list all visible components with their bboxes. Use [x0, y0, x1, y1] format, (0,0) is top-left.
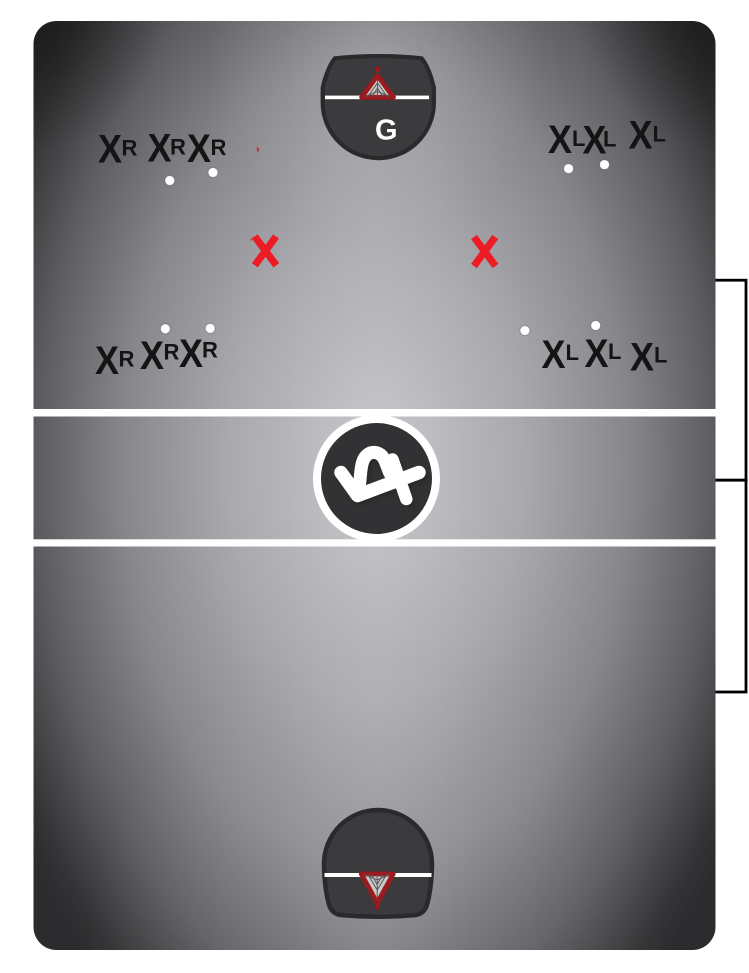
svg-text:L: L — [566, 340, 579, 365]
svg-text:G: G — [375, 114, 398, 146]
svg-text:X: X — [542, 333, 566, 377]
svg-text:R: R — [122, 136, 138, 161]
svg-text:X: X — [95, 339, 119, 383]
svg-text:L: L — [603, 127, 616, 152]
svg-text:X: X — [548, 118, 572, 162]
svg-text:X: X — [148, 127, 172, 171]
svg-text:X: X — [187, 127, 211, 171]
svg-text:X: X — [179, 332, 203, 376]
svg-text:X: X — [630, 336, 654, 380]
svg-text:R: R — [170, 135, 186, 160]
svg-text:X: X — [585, 332, 609, 376]
svg-text:R: R — [119, 347, 135, 372]
svg-text:L: L — [608, 339, 621, 364]
svg-text:R: R — [202, 338, 218, 363]
svg-text:L: L — [653, 122, 666, 147]
svg-text:X: X — [629, 114, 653, 158]
svg-text:X: X — [140, 334, 164, 378]
svg-text:L: L — [654, 343, 667, 368]
svg-text:R: R — [211, 135, 227, 160]
svg-text:X: X — [98, 128, 122, 172]
svg-text:R: R — [164, 340, 180, 365]
